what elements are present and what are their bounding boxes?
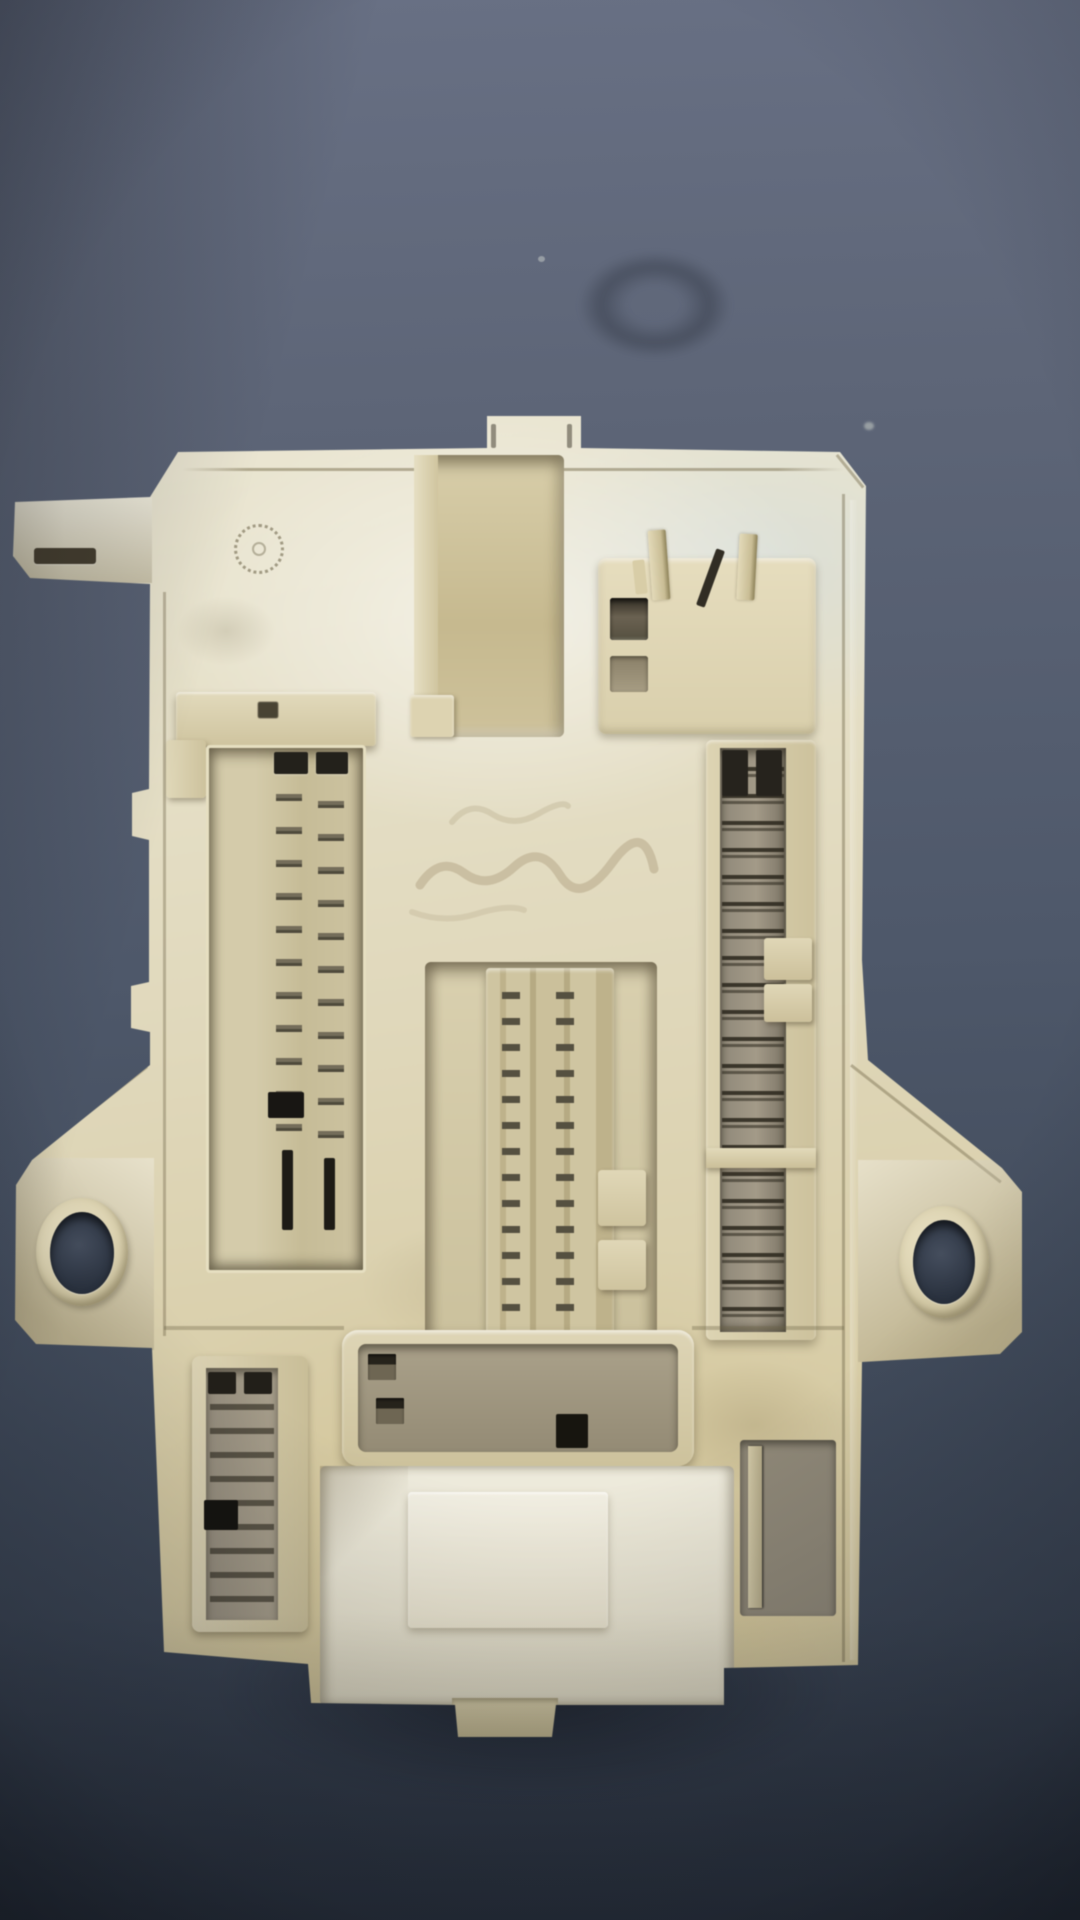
photo-blur-layer [0, 0, 1080, 1920]
terminal-blade-pin [648, 529, 671, 600]
left-edge-ridge [163, 592, 166, 1336]
black-key-slot [268, 1092, 304, 1118]
black-key-slot [244, 1372, 272, 1394]
right-edge-ridge [842, 494, 845, 1662]
connector-right-divider [706, 1148, 816, 1168]
mounting-hole-right [913, 1220, 975, 1304]
connector-top-center-step [410, 695, 454, 737]
bottom-tab [452, 1698, 558, 1738]
pin-column [722, 760, 784, 1320]
pin-slot [368, 1354, 396, 1380]
black-key-slot [204, 1500, 238, 1530]
socket-slot [610, 598, 648, 640]
wing-bracket-left [14, 497, 152, 583]
molded-circle-center [252, 542, 266, 556]
skirt-shelf-line [164, 1326, 344, 1330]
connector-bottom-wide-interior [358, 1344, 678, 1452]
grime-patch [176, 596, 276, 666]
surface-speck [864, 422, 874, 430]
pin-column [502, 992, 520, 1312]
top-tab-mark [567, 424, 572, 448]
black-key-slot [722, 750, 748, 796]
black-key-slot [556, 1414, 588, 1448]
socket-slot [610, 656, 648, 692]
bottom-shroud-shadow [320, 1466, 408, 1576]
terminal-blade-pin [736, 534, 757, 601]
right-edge-highlight [850, 500, 858, 1660]
mounting-hole-left [50, 1212, 114, 1294]
flange-ridge-left [28, 1066, 148, 1161]
bottom-shroud-plateau [408, 1492, 608, 1628]
black-key-slot [316, 752, 348, 774]
molded-circle-symbol [234, 524, 284, 574]
skirt-fin [748, 1446, 762, 1608]
wing-bracket-slot [34, 548, 96, 564]
molded-side-tab [764, 984, 812, 1022]
molded-side-tab [598, 1170, 646, 1226]
connector-left-ledge [176, 692, 376, 746]
pin-slot [376, 1398, 404, 1424]
top-right-bevel-line [836, 454, 865, 489]
pin-column [556, 992, 574, 1312]
top-tab-mark [491, 424, 496, 448]
faint-handwritten-scribble [390, 760, 710, 980]
connector-left-hook [166, 740, 206, 798]
pin-column [276, 788, 302, 1136]
black-vertical-slot [282, 1150, 293, 1230]
skirt-shelf-line [692, 1326, 844, 1330]
molded-side-tab [764, 938, 812, 980]
surface-smudge [555, 235, 755, 375]
black-key-slot [756, 750, 782, 796]
black-vertical-slot [324, 1158, 335, 1230]
ledge-notch [258, 702, 278, 718]
black-key-slot [274, 752, 308, 774]
molded-side-tab [598, 1240, 646, 1290]
photo-canvas [0, 0, 1080, 1920]
pin-column [318, 795, 344, 1143]
black-key-slot [208, 1372, 236, 1394]
surface-speck [538, 256, 545, 262]
